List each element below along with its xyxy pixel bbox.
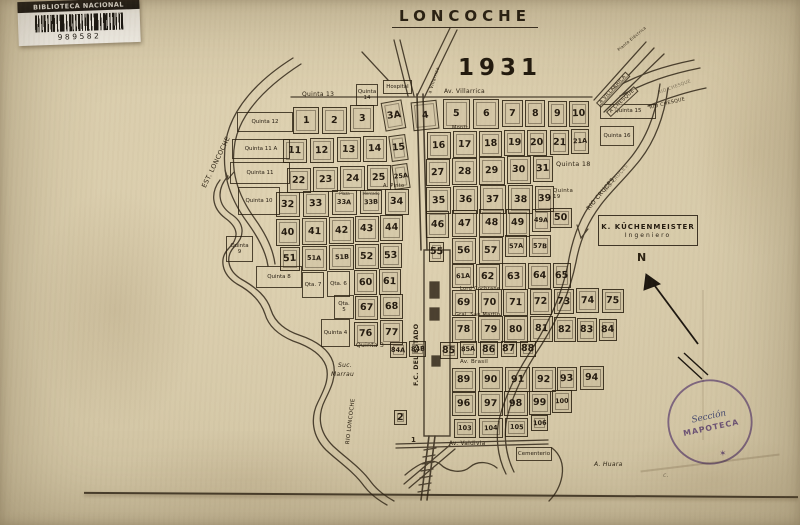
block-number: 99 (533, 398, 547, 408)
map-block: 49 (506, 209, 530, 237)
block-number: 5 (453, 109, 460, 119)
block-number: 51 (283, 254, 297, 264)
map-block: 19 (504, 130, 525, 156)
block-number: 57 (484, 245, 498, 255)
block-number: 53 (384, 251, 398, 261)
map-block: 51B (329, 245, 354, 270)
block-number: 37 (486, 195, 500, 205)
map-block: 100 (552, 390, 572, 413)
quinta-block: Qta. 7 (302, 272, 324, 298)
map-block: 60 (354, 270, 377, 295)
map-block: 75 (602, 289, 624, 313)
map-block: 31 (533, 156, 553, 182)
block-number: 65 (555, 271, 569, 281)
map-block: 48 (479, 209, 504, 237)
map-block: 68 (380, 294, 403, 319)
block-number: 28 (458, 166, 472, 176)
map-label: Quinta 18 (556, 161, 591, 168)
block-number: 2 (331, 116, 338, 126)
quinta-block: Qta. 5 (334, 295, 354, 319)
map-block: 61 (379, 269, 401, 295)
credit-name: K. KÜCHENMEISTER (599, 223, 697, 231)
map-label: Quinta 19 (553, 189, 579, 201)
map-block: 1 (293, 107, 319, 134)
map-block: 53 (380, 243, 402, 268)
map-block: 93 (557, 367, 577, 391)
map-block: 89 (452, 368, 476, 392)
map-block: 57A (505, 235, 527, 257)
block-number: 85 (442, 345, 456, 355)
block-number: 69 (457, 298, 471, 308)
credit-box: K. KÜCHENMEISTER Ingeniero (598, 215, 698, 246)
block-number: 94 (585, 373, 599, 383)
block-number: 84 (601, 325, 615, 335)
map-block: 24 (340, 166, 365, 191)
quinta-label: Quinta 9 (228, 243, 251, 256)
block-number: 104 (484, 425, 498, 432)
map-label: Quinta 13 (302, 92, 334, 98)
credit-role: Ingeniero (599, 232, 697, 239)
block-number: 21 (553, 137, 567, 147)
map-block: 49A (532, 209, 551, 232)
quinta-block: Quinta 14 (356, 84, 378, 106)
block-number: 51B (334, 254, 348, 261)
block-number: 41 (308, 226, 322, 236)
map-label: c. (663, 473, 669, 479)
map-block: 3A (381, 99, 407, 131)
barcode-sticker: BIBLIOTECA NACIONAL 989582 (17, 0, 140, 46)
map-label: Quinta 3 (356, 343, 384, 349)
map-block: 71 (503, 289, 528, 316)
block-number: 70 (483, 298, 497, 308)
stamp-graphic: BIBLIOTECA NACIONAL ✶ Sección MAPOTECA (651, 363, 770, 482)
map-label: F.C. DEL ESTADO (414, 324, 421, 386)
block-number: 85A (461, 346, 475, 353)
block-number: 78 (457, 325, 471, 335)
block-number: 56 (457, 246, 471, 256)
block-number: 19 (508, 138, 522, 148)
map-block: 84 (599, 319, 617, 341)
block-number: 49A (534, 217, 548, 224)
map-label: Planta Eléctrica (617, 26, 647, 52)
quinta-label: Qta. 7 (305, 282, 322, 288)
map-label: Marrau (331, 372, 354, 378)
map-block: 47 (452, 210, 477, 237)
quinta-label: Quinta 4 (324, 330, 348, 336)
map-block: 21A (571, 129, 589, 154)
map-label: EST. LONCOCHE (201, 136, 232, 189)
block-number: 77 (385, 327, 399, 337)
map-block: 97 (478, 391, 503, 416)
map-block: 74 (576, 288, 599, 313)
block-number: 25A (394, 173, 409, 181)
block-caption: Mercado (361, 192, 381, 196)
quinta-label: Quinta 16 (603, 133, 630, 139)
map-label: N (637, 252, 647, 264)
quinta-block: Quinta 4 (321, 319, 350, 347)
map-block: 67 (355, 296, 378, 320)
block-number: 33B (364, 199, 378, 206)
map-block: 98 (504, 391, 528, 416)
block-number: 91 (511, 375, 525, 385)
block-number: 12 (315, 146, 329, 156)
block-number: 100 (555, 398, 569, 405)
map-block: 92 (532, 367, 556, 392)
block-number: 38 (514, 194, 528, 204)
quinta-block: Qta. 6 (327, 271, 350, 297)
quinta-block: Quinta 11 (230, 162, 290, 184)
block-number: 3 (359, 114, 366, 124)
block-number: 33 (309, 199, 323, 209)
block-number: 92 (537, 374, 551, 384)
block-number: 105 (510, 424, 524, 431)
block-number: 46 (431, 219, 445, 229)
block-number: 21A (573, 138, 587, 145)
map-block: 27 (426, 159, 450, 186)
quinta-label: Quinta 12 (251, 119, 278, 125)
block-number: 7 (509, 109, 516, 119)
block-number: 18 (484, 139, 498, 149)
map-block: 35 (426, 187, 451, 214)
block-number: 72 (534, 297, 548, 307)
map-block: 14 (363, 136, 387, 162)
map-block: 51A (302, 246, 327, 271)
map-block: 43 (355, 216, 379, 242)
block-number: 96 (457, 399, 471, 409)
map-block: 52 (355, 244, 379, 269)
barcode-library-name: BIBLIOTECA NACIONAL (17, 0, 139, 13)
map-block: 72 (530, 289, 552, 315)
quinta-block: Quinta 12 (237, 112, 293, 132)
block-number: 24 (346, 173, 360, 183)
barcode-icon (35, 12, 124, 32)
map-block: 64 (528, 263, 551, 289)
block-number: 35 (432, 196, 446, 206)
map-block: 80 (504, 316, 528, 343)
block-number: 27 (431, 168, 445, 178)
map-block: 82 (554, 317, 576, 342)
map-block: 87 (501, 341, 517, 357)
map-block: 83 (577, 318, 597, 342)
block-number: 52 (360, 251, 374, 261)
map-block: 4 (411, 100, 440, 132)
map-block: 18 (479, 131, 502, 157)
block-number: 84A (391, 346, 405, 353)
block-number: 90 (484, 374, 498, 384)
svg-text:✶: ✶ (717, 447, 728, 460)
map-label: Gral. San Martin (455, 313, 500, 318)
block-number: 6 (483, 109, 490, 119)
block-number: 62 (481, 272, 495, 282)
quinta-block: Quinta 8 (256, 266, 302, 288)
block-number: 25 (372, 173, 386, 183)
quinta-label: Quinta 14 (358, 89, 376, 102)
map-block: 7 (502, 100, 523, 127)
block-number: 98 (509, 399, 523, 409)
block-number: 16 (432, 141, 446, 151)
map-block: 99 (529, 391, 551, 415)
quinta-label: Quinta 11 A (245, 146, 278, 152)
block-number: 48 (485, 218, 499, 228)
map-block: 105 (505, 418, 528, 437)
block-number: 29 (485, 166, 499, 176)
map-block: 73 (554, 289, 574, 314)
map-block: 42 (329, 217, 354, 244)
block-number: 106 (533, 420, 547, 427)
block-number: 43 (360, 224, 374, 234)
block-number: 81 (535, 324, 549, 334)
map-title: LONCOCHE (392, 7, 538, 28)
block-number: 57A (509, 243, 523, 250)
block-number: 44 (385, 223, 399, 233)
block-number: 60 (359, 278, 373, 288)
block-number: 83 (580, 325, 594, 335)
block-number: 97 (484, 398, 498, 408)
block-number: 75 (606, 296, 620, 306)
map-label: Av. Brasil (460, 360, 488, 366)
block-number: 17 (458, 139, 472, 149)
map-block: 61A (452, 264, 474, 288)
block-number: 88 (521, 344, 535, 354)
map-label: Av. Valdivia (449, 441, 485, 447)
block-number: 4 (421, 110, 429, 120)
map-block: 30 (507, 156, 531, 184)
map-block: 57 (479, 237, 503, 264)
block-number: 103 (458, 425, 472, 432)
map-block: 2 (394, 410, 407, 425)
quinta-label: Cementerio (518, 451, 550, 457)
quinta-label: Quinta 10 (245, 198, 272, 204)
block-number: 73 (557, 296, 571, 306)
block-number: 39 (538, 194, 552, 204)
quinta-block: Quinta 16 (600, 126, 634, 146)
stamp-star: ✶ (717, 447, 728, 460)
map-block: 44 (380, 215, 403, 241)
block-number: 51A (307, 255, 321, 262)
block-number: 93 (560, 374, 574, 384)
quinta-label: Quinta 11 (246, 170, 273, 176)
library-stamp: BIBLIOTECA NACIONAL ✶ Sección MAPOTECA (651, 363, 770, 482)
scanned-map-page: 1233A45678910111213141516171819202121A22… (0, 0, 800, 525)
map-block: 29 (479, 157, 505, 185)
map-block: 65 (553, 263, 571, 288)
map-block: 15 (388, 134, 408, 162)
map-block: Plaza33A (332, 190, 357, 215)
map-label: RIO LONCOCHE (346, 398, 357, 444)
map-block: 28 (452, 158, 477, 185)
map-block: 91 (505, 367, 530, 392)
block-number: 80 (509, 325, 523, 335)
map-block: 16 (427, 132, 451, 159)
block-number: 33A (337, 199, 351, 206)
map-block: 12 (310, 138, 334, 163)
map-block: 85A (460, 341, 477, 358)
map-block: 55 (429, 242, 444, 262)
quinta-block: Quinta 10 (238, 187, 280, 215)
quinta-block: Quinta 11 A (232, 139, 290, 159)
block-number: 22 (292, 175, 306, 185)
block-number: 15 (391, 143, 405, 154)
map-block: 106 (531, 415, 548, 431)
map-block: 33 (303, 191, 329, 217)
map-block: 6 (473, 99, 499, 129)
block-number: 31 (536, 164, 550, 174)
map-block: 81 (530, 316, 553, 342)
map-block: 94 (580, 366, 604, 390)
block-number: 32 (281, 199, 295, 209)
block-number: 71 (509, 297, 523, 307)
block-number: 89 (457, 375, 471, 385)
map-label: Montt (452, 126, 468, 131)
map-block: 78 (452, 317, 476, 343)
block-number: 42 (335, 226, 349, 236)
quinta-label: Quinta 8 (267, 274, 291, 280)
map-block: 79 (478, 316, 503, 343)
map-block: 56 (452, 238, 476, 264)
block-number: 82 (558, 325, 572, 335)
map-block: 50 (550, 208, 572, 228)
block-number: 11 (288, 146, 302, 156)
quinta-label: Qta. 6 (330, 281, 347, 287)
map-label: A. Pinto (383, 184, 404, 189)
block-number: 49 (511, 218, 525, 228)
block-number: 64 (533, 271, 547, 281)
block-number: 68 (385, 302, 399, 312)
block-number: 87 (502, 344, 516, 354)
block-number: 9 (554, 109, 561, 119)
block-number: 55 (430, 247, 444, 257)
map-block: 20 (527, 130, 547, 156)
block-number: 1 (303, 116, 310, 126)
block-caption: Plaza (333, 192, 356, 196)
map-block: 23 (313, 167, 338, 192)
map-block: 34 (385, 189, 409, 215)
block-number: 34 (390, 197, 404, 207)
block-number: 23 (319, 175, 333, 185)
map-block: 85 (440, 342, 458, 359)
map-label: RIO CHESQUE (658, 80, 692, 96)
block-number: 86 (482, 344, 496, 354)
block-number: 10 (572, 109, 586, 119)
block-number: 50 (554, 213, 568, 223)
block-number: 76 (359, 329, 373, 339)
block-number: 30 (512, 165, 526, 175)
block-number: 2 (397, 413, 404, 423)
block-number: 67 (360, 303, 374, 313)
quinta-label: Qta. 5 (336, 301, 352, 314)
block-number: 47 (458, 219, 472, 229)
map-block: 40 (276, 219, 300, 246)
map-block: 2 (322, 107, 347, 134)
map-block: 104 (479, 418, 503, 438)
map-label: A. Huara (594, 462, 623, 468)
block-number: 14 (368, 144, 382, 154)
block-number: 20 (530, 138, 544, 148)
map-year: 1931 (458, 55, 542, 81)
block-number: 74 (581, 296, 595, 306)
map-block: 103 (454, 419, 476, 438)
map-block: 17 (453, 131, 477, 158)
map-label: Av. Villarrica (444, 89, 485, 95)
block-number: 63 (507, 272, 521, 282)
map-block: 46 (426, 211, 449, 238)
map-block: 3 (350, 105, 374, 132)
map-block: 63 (502, 263, 526, 290)
map-label: RIO CHESQUE (649, 97, 686, 111)
map-label: 1 (411, 437, 416, 444)
block-number: 3A (386, 110, 401, 121)
quinta-block: Cementerio (516, 447, 552, 461)
map-block: 84A (390, 342, 407, 358)
map-block: 88 (520, 341, 536, 357)
map-label: Suc. (338, 363, 352, 369)
map-block: 22 (287, 168, 311, 193)
block-number: 8 (532, 109, 539, 119)
quinta-label: Hospital (386, 84, 408, 90)
block-number: 13 (342, 144, 356, 154)
map-label: a Villarrica (429, 67, 442, 95)
block-number: 36 (459, 195, 473, 205)
quinta-block: Quinta 9 (226, 236, 253, 262)
map-block: 90 (479, 367, 503, 392)
map-block: 86 (480, 341, 498, 358)
map-block: 57B (529, 235, 551, 257)
quinta-block: Hospital (383, 80, 412, 94)
map-block: 96 (452, 392, 476, 416)
map-block: 9 (548, 101, 567, 127)
block-number: 61 (383, 277, 397, 287)
block-number: 79 (484, 324, 498, 334)
map-block: 10 (569, 101, 589, 127)
map-label: Lord Cochrane (460, 287, 500, 292)
block-number: 40 (281, 228, 295, 238)
map-block: 21 (550, 130, 569, 155)
map-block: 13 (337, 137, 361, 162)
map-block: Mercado33B (360, 190, 382, 214)
block-number: 61A (456, 273, 470, 280)
map-block: 8 (525, 100, 545, 127)
map-block: 41 (302, 218, 327, 245)
block-number: 57B (533, 242, 547, 249)
